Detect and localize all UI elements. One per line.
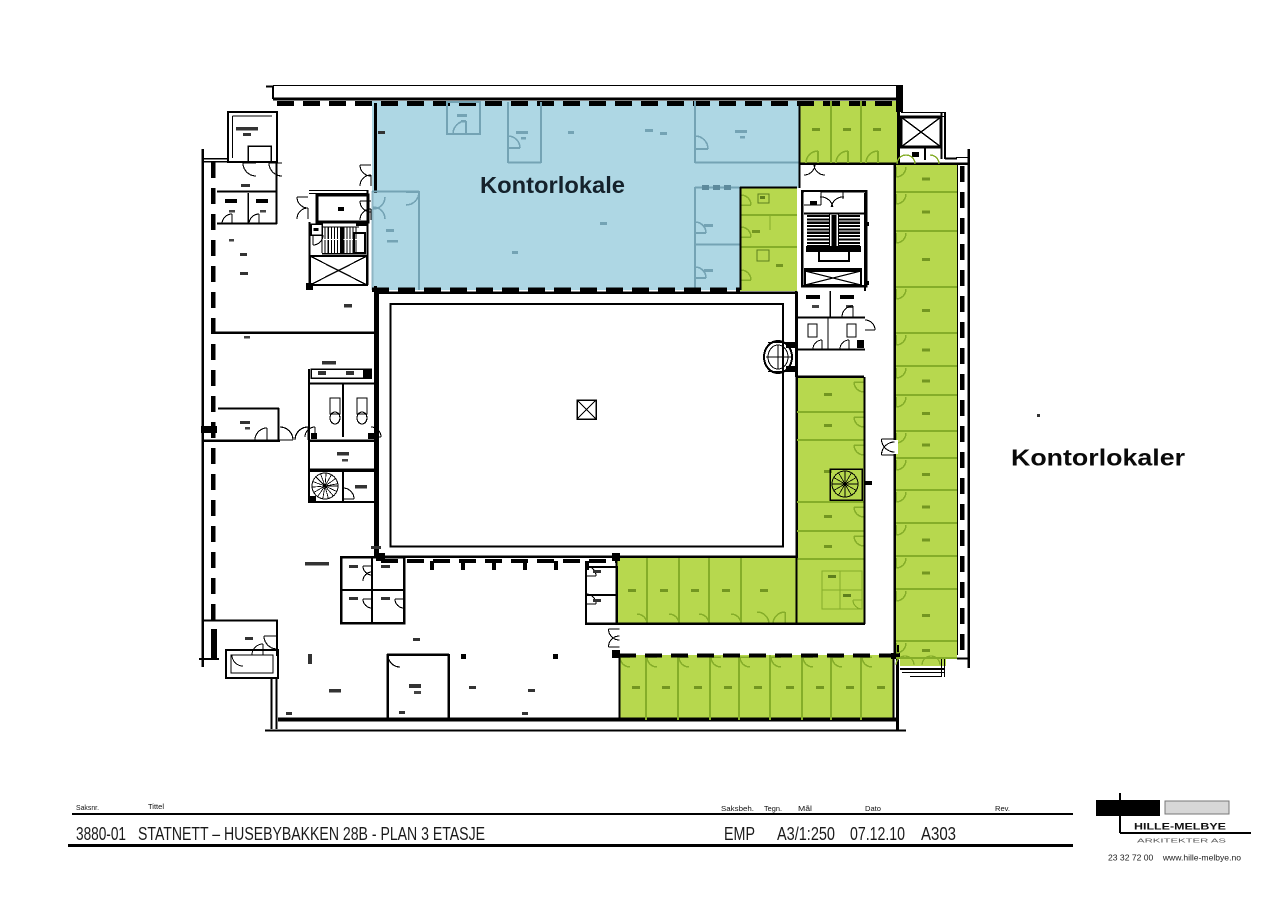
svg-text:Saksbeh.: Saksbeh. — [721, 804, 754, 813]
svg-text:A303: A303 — [921, 823, 956, 844]
svg-text:HILLE-MELBYE: HILLE-MELBYE — [1134, 822, 1226, 833]
svg-text:STATNETT – HUSEBYBAKKEN 28B -: STATNETT – HUSEBYBAKKEN 28B - PLAN 3 ETA… — [138, 823, 485, 844]
svg-text:3880-01: 3880-01 — [76, 823, 126, 844]
svg-text:Kontorlokale: Kontorlokale — [480, 172, 625, 198]
svg-text:A3/1:250: A3/1:250 — [777, 823, 835, 844]
svg-text:ARKITEKTER AS: ARKITEKTER AS — [1137, 839, 1227, 845]
svg-text:Saksnr.: Saksnr. — [76, 803, 99, 812]
svg-text:07.12.10: 07.12.10 — [850, 823, 905, 844]
svg-text:Dato: Dato — [865, 804, 881, 813]
svg-text:Rev.: Rev. — [995, 804, 1010, 813]
svg-text:EMP: EMP — [724, 823, 755, 844]
svg-text:Tittel: Tittel — [148, 802, 164, 811]
svg-text:Kontorlokaler: Kontorlokaler — [1011, 445, 1185, 471]
svg-text:Mål: Mål — [798, 804, 812, 813]
svg-text:23 32 72 00 www.hille-melby: 23 32 72 00 www.hille-melbye.no — [1108, 853, 1241, 863]
svg-text:Tegn.: Tegn. — [764, 804, 782, 813]
